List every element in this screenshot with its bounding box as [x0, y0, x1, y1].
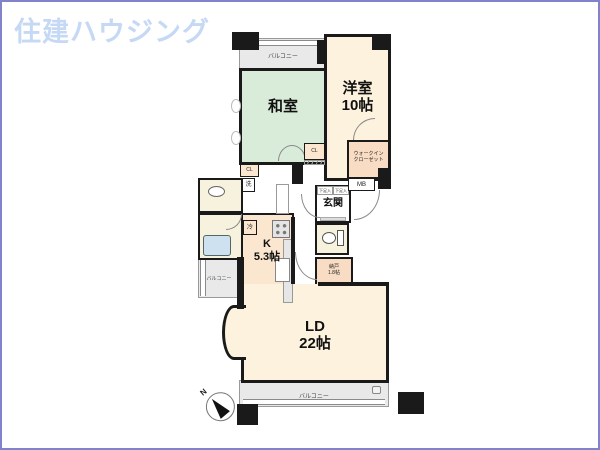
room-tatami-label: 和室 — [239, 98, 327, 115]
wall-segment — [292, 163, 303, 184]
storage-room-label: 納戸 1.8帖 — [315, 264, 353, 276]
living-door-arc — [295, 252, 317, 280]
meter-box: MB — [348, 178, 375, 191]
closet: CL — [240, 164, 259, 177]
entrance-door-arc — [301, 194, 320, 218]
fridge-space: 冷 — [243, 220, 257, 235]
entrance-label: 玄関 — [315, 198, 351, 210]
washer-space: 洗 — [242, 178, 255, 192]
balcony-left: バルコニー — [198, 257, 240, 298]
balcony-top-label: バルコニー — [240, 51, 326, 60]
pillar — [372, 35, 391, 50]
compass-north-label: N — [198, 387, 208, 398]
pillar — [398, 392, 424, 414]
room-living-dining-label: LD 22帖 — [241, 318, 389, 353]
balcony-railing — [200, 260, 206, 296]
floorplan-image: 住建ハウジング バルコニー バルコニー バルコニー 洋室 10帖 和室 ウォーク… — [0, 0, 600, 450]
pillar — [317, 40, 327, 64]
shoe-cabinet: 下足入 — [333, 186, 349, 195]
bathtub-icon — [203, 235, 231, 256]
folding-door — [304, 160, 325, 165]
front-door-arc — [354, 190, 380, 220]
window-mark — [231, 131, 241, 145]
toilet-tank-icon — [337, 230, 344, 246]
room-western-label: 洋室 10帖 — [324, 80, 391, 115]
wall-segment — [318, 282, 389, 286]
balcony-bottom: バルコニー — [239, 380, 389, 407]
walk-in-closet-label: ウォークイン クローゼット — [347, 151, 390, 163]
wall-segment — [237, 257, 244, 309]
balcony-drain-icon — [372, 386, 381, 394]
entrance-counter — [320, 217, 346, 221]
sink-icon — [208, 186, 225, 197]
toilet-icon — [322, 232, 336, 244]
hall-closet-folding-door — [276, 184, 289, 214]
wall-segment — [291, 217, 295, 284]
pillar — [237, 404, 258, 425]
balcony-railing — [243, 399, 385, 405]
pillar — [378, 168, 391, 189]
stove-icon — [272, 220, 290, 238]
pillar — [232, 32, 259, 50]
company-logo: 住建ハウジング — [14, 10, 210, 49]
room-kitchen-label: K 5.3帖 — [244, 238, 290, 263]
closet: CL — [304, 143, 325, 160]
